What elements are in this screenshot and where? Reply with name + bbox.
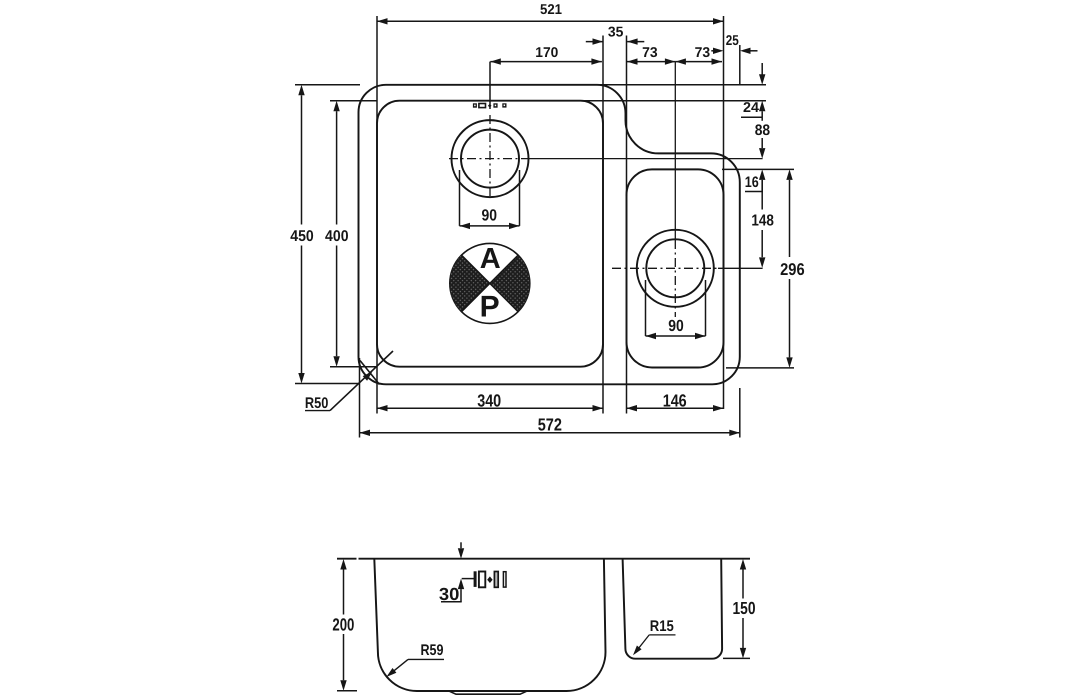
- svg-text:150: 150: [733, 598, 756, 618]
- svg-text:R15: R15: [650, 618, 674, 635]
- svg-text:73: 73: [642, 45, 658, 61]
- svg-text:30: 30: [439, 584, 460, 604]
- svg-text:35: 35: [608, 25, 624, 41]
- svg-text:340: 340: [477, 390, 501, 410]
- svg-text:88: 88: [755, 122, 770, 139]
- svg-text:90: 90: [668, 317, 684, 335]
- svg-text:400: 400: [325, 228, 349, 245]
- svg-text:146: 146: [663, 390, 687, 410]
- svg-text:170: 170: [535, 45, 558, 61]
- svg-text:90: 90: [482, 207, 498, 225]
- svg-text:200: 200: [332, 615, 354, 635]
- svg-text:521: 521: [540, 2, 562, 18]
- svg-text:R50: R50: [305, 395, 329, 412]
- svg-text:A: A: [480, 243, 501, 275]
- svg-text:25: 25: [726, 33, 739, 49]
- svg-text:P: P: [480, 291, 500, 324]
- svg-text:148: 148: [751, 212, 774, 229]
- svg-text:R59: R59: [421, 642, 444, 659]
- svg-text:572: 572: [538, 415, 562, 435]
- svg-text:73: 73: [695, 45, 711, 61]
- svg-text:296: 296: [780, 260, 805, 279]
- svg-text:24: 24: [743, 100, 759, 116]
- svg-text:16: 16: [745, 174, 759, 191]
- svg-text:450: 450: [290, 228, 314, 245]
